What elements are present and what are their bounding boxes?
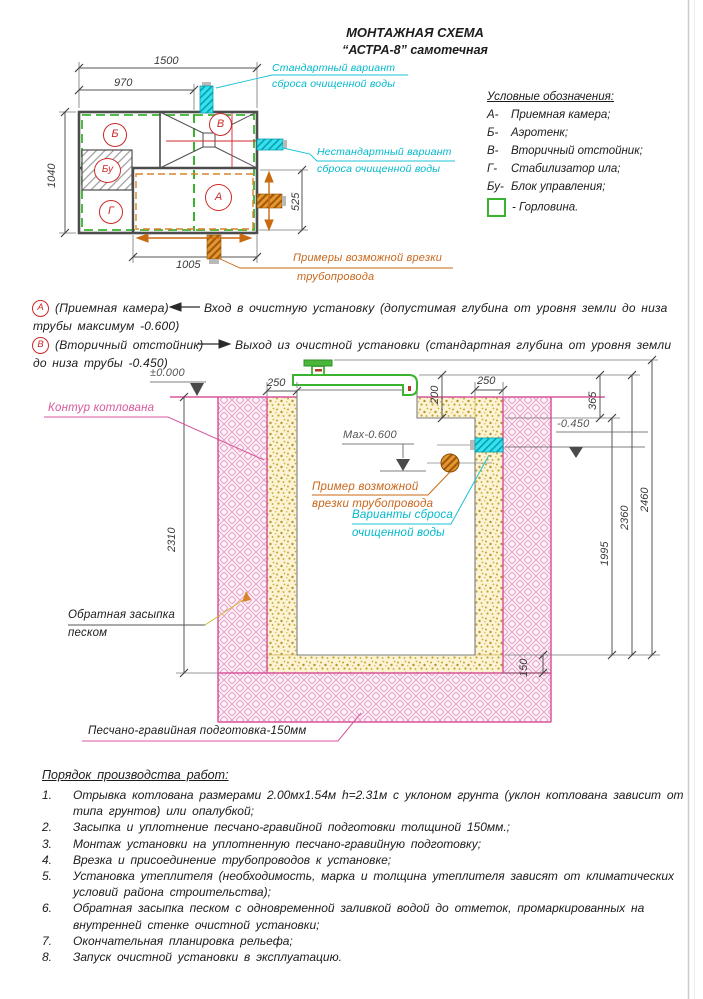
pit-contour-label: Контур котлована: [48, 402, 154, 414]
plan-section-a: А: [205, 184, 232, 211]
legend-item: В-Вторичный отстойник;: [487, 144, 643, 159]
legend-header: Условные обозначения:: [487, 91, 643, 103]
work-order-item: 4. Врезка и присоединение трубопроводов …: [42, 852, 687, 868]
work-order-item: 5. Установка утеплителя (необходимость, …: [42, 868, 687, 900]
legend-item: А-Приемная камера;: [487, 108, 643, 123]
drawing-page: МОНТАЖНАЯ СХЕМА “АСТРА-8” самотечная Усл…: [0, 0, 703, 999]
plan-nonstandard-discharge-pipe: [257, 139, 287, 150]
work-order-item: 2. Засыпка и уплотнение песчано-гравийно…: [42, 819, 687, 835]
plan-section-g: Г: [99, 200, 123, 224]
neck-square-icon: [487, 198, 506, 217]
plan-inlet-pipe-right: [257, 194, 286, 208]
sand-backfill-label: Обратная засыпка: [68, 609, 175, 621]
section-dim-2310: 2310: [166, 528, 178, 552]
plan-section-v: В: [209, 113, 232, 136]
work-order-item: 3. Монтаж установки на уплотненную песча…: [42, 836, 687, 852]
plan-inlet-pipe-bottom: [207, 235, 221, 264]
section-dim-250-left: 250: [267, 377, 285, 389]
section-dim-365: 365: [587, 392, 599, 410]
level-zero-label: ±0.000: [150, 367, 185, 379]
note-a-name: (Приемная камера): [55, 301, 169, 315]
legend-item-neck: - Горловина.: [487, 198, 643, 213]
discharge-options-label: Варианты сброса: [352, 509, 453, 521]
work-order-item: 6. Обратная засыпка песком с одновременн…: [42, 900, 687, 932]
plan-section-b: Б: [103, 123, 127, 147]
section-dim-150: 150: [518, 659, 530, 677]
pipe-examples-label: Примеры возможной врезки: [293, 252, 442, 264]
legend-item: Г-Стабилизатор ила;: [487, 162, 643, 177]
level-mark-zero: [150, 382, 206, 396]
plan-dim-1040: 1040: [46, 164, 58, 188]
plan-dim-970: 970: [114, 77, 132, 89]
legend-item: Б-Аэротенк;: [487, 126, 643, 141]
level-max-label: Max-0.600: [343, 429, 397, 441]
nonstandard-discharge-label: Нестандартный вариант: [317, 146, 452, 158]
section-dim-250-right: 250: [477, 375, 495, 387]
page-title: МОНТАЖНАЯ СХЕМА: [300, 25, 530, 40]
page-subtitle: “АСТРА-8” самотечная: [300, 43, 530, 57]
section-dim-200: 200: [429, 386, 441, 404]
work-order-item: 8. Запуск очистной установки в эксплуата…: [42, 949, 687, 965]
standard-discharge-label: Стандартный вариант: [272, 62, 395, 74]
note-a-badge: А: [32, 300, 49, 317]
section-dim-1995: 1995: [599, 542, 611, 566]
plan-section-bu: Бу: [94, 158, 121, 183]
plan-standard-discharge-pipe: [200, 82, 213, 113]
note-b-text: Выход из очистной установки (стандартная…: [235, 338, 671, 352]
level-out-label: -0.450: [557, 418, 589, 430]
plan-dim-1005: 1005: [176, 259, 200, 271]
note-a-text: Вход в очистную установку (допустимая гл…: [204, 301, 667, 315]
note-b-badge: В: [32, 337, 49, 354]
section-dim-2360: 2360: [619, 506, 631, 530]
legend: Условные обозначения: А-Приемная камера;…: [487, 91, 643, 213]
work-order-item: 1. Отрывка котлована размерами 2.00мх1.5…: [42, 787, 687, 819]
plan-dim-525: 525: [290, 193, 302, 211]
section-dim-2460: 2460: [639, 488, 651, 512]
work-order-header: Порядок производства работ:: [42, 768, 687, 782]
inlet-example-label: Пример возможной: [312, 481, 419, 493]
work-order-list: Порядок производства работ: 1. Отрывка к…: [42, 768, 687, 965]
note-b-name: (Вторичный отстойник): [55, 338, 203, 352]
work-order-item: 7. Окончательная планировка рельефа;: [42, 933, 687, 949]
plan-dim-1500: 1500: [154, 55, 178, 67]
gravel-bed-label: Песчано-гравийная подготовка-150мм: [88, 725, 306, 737]
legend-item: Бу-Блок управления;: [487, 180, 643, 195]
